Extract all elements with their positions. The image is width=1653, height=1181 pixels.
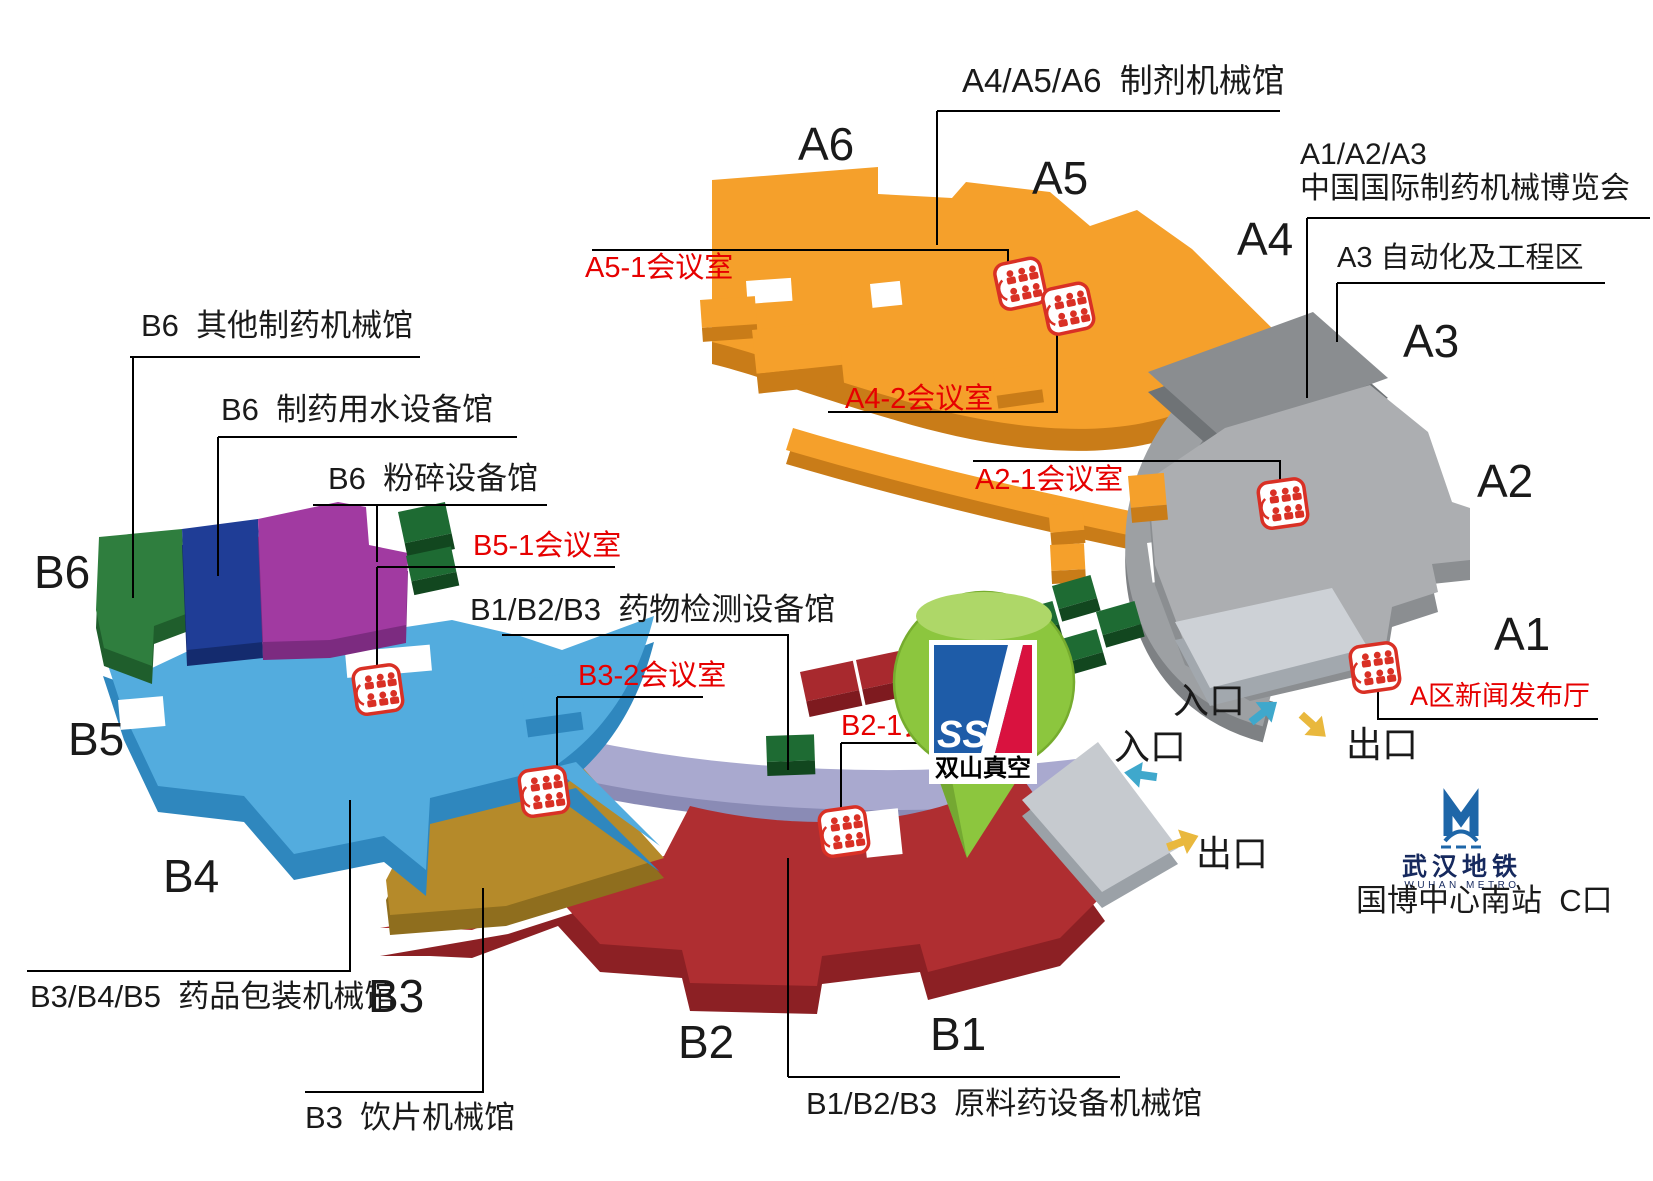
hall-label-b6: B6 [34, 546, 90, 599]
meeting-icon-b3-2 [518, 766, 570, 818]
meeting-icon-b5-1 [352, 664, 404, 716]
zone-label-b123-material: B1/B2/B3 原料药设备机械馆 [806, 1086, 1202, 1122]
meeting-icon-a4-2 [1041, 281, 1096, 336]
meeting-icon-a2-1 [1257, 478, 1309, 530]
hall-b6-blue [182, 519, 263, 666]
hall-label-b3: B3 [368, 970, 424, 1023]
meeting-label-a2-1: A2-1会议室 [975, 464, 1123, 497]
ssi-logo-text: SSI [937, 714, 1000, 756]
hall-label-b2: B2 [678, 1016, 734, 1069]
zone-label-b3-slice: B3 饮片机械馆 [305, 1100, 515, 1136]
meeting-icon-a-news [1349, 642, 1401, 694]
hall-label-a4: A4 [1237, 213, 1293, 266]
zone-label-a3-area: A3 自动化及工程区 [1337, 242, 1584, 275]
exit-arrow-icon [1293, 705, 1335, 746]
exit-label: 出口 [1346, 724, 1418, 765]
hall-label-a2: A2 [1477, 455, 1533, 508]
hall-label-a3: A3 [1403, 315, 1459, 368]
metro-station-label: 国博中心南站 C口 [1356, 883, 1613, 919]
zone-title-a123-line2: 中国国际制药机械博览会 [1300, 172, 1630, 207]
wuhan-metro-logo-icon [1441, 802, 1481, 847]
hall-label-b5: B5 [68, 713, 124, 766]
hall-label-a1: A1 [1494, 608, 1550, 661]
zone-label-b6-crush: B6 粉碎设备馆 [328, 461, 538, 497]
meeting-icon-a5-1 [993, 256, 1048, 311]
meeting-label-a4-2: A4-2会议室 [845, 383, 993, 416]
location-pin: SSI 双山真空 [855, 560, 1115, 880]
exit-label: 出口 [1196, 833, 1268, 874]
hall-label-a6: A6 [798, 118, 854, 171]
zone-title-a123-line1: A1/A2/A3 [1300, 138, 1427, 173]
expo-floor-map: A4/A5/A6 制剂机械馆 A1/A2/A3 中国国际制药机械博览会 A3 自… [0, 0, 1653, 1181]
hall-label-b1: B1 [930, 1008, 986, 1061]
zone-title-a456: A4/A5/A6 制剂机械馆 [962, 62, 1285, 100]
booth-box-blue [520, 672, 584, 737]
hall-label-a5: A5 [1032, 152, 1088, 205]
entrance-label: 入口 [1114, 726, 1186, 767]
zone-label-b6-other: B6 其他制药机械馆 [141, 308, 413, 344]
zone-label-b123-test: B1/B2/B3 药物检测设备馆 [470, 592, 835, 628]
meeting-label-b5-1: B5-1会议室 [473, 530, 621, 563]
entrance-label: 入口 [1173, 680, 1245, 721]
hall-label-b4: B4 [163, 850, 219, 903]
metro-name-cn: 武汉地铁 [1402, 853, 1522, 882]
meeting-label-a5-1: A5-1会议室 [585, 252, 733, 285]
meeting-label-a-news: A区新闻发布厅 [1410, 681, 1590, 712]
meeting-label-b3-2: B3-2会议室 [578, 660, 726, 693]
pin-highlight [916, 592, 1052, 640]
zone-label-b6-water: B6 制药用水设备馆 [221, 392, 493, 428]
hall-b6-purple [258, 502, 408, 660]
ssi-logo-name: 双山真空 [935, 754, 1031, 782]
zone-label-b345-pack: B3/B4/B5 药品包装机械馆 [30, 979, 395, 1015]
